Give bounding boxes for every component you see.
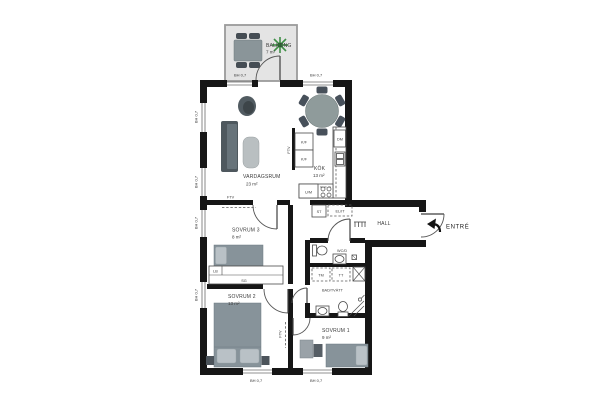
- bedroom3: SOVRUM 3 8 m² LB SG: [209, 228, 283, 285]
- window: [303, 370, 332, 373]
- room-area-sovrum3: 8 m²: [232, 235, 242, 240]
- bathroom: TM TT BAD/TVÄTT: [312, 267, 365, 317]
- window: [227, 82, 252, 85]
- room-area-sovrum2: 13 m²: [228, 301, 240, 306]
- window: [202, 168, 205, 196]
- window: [202, 103, 205, 132]
- bed-pillow: [356, 346, 367, 365]
- entrance-label: ENTRÉ: [446, 224, 469, 231]
- shower-icon: [349, 295, 365, 316]
- shaft: [353, 267, 365, 281]
- sink-icon: [333, 254, 346, 264]
- bedroom2-door: [264, 289, 288, 313]
- nightstand: [262, 356, 270, 365]
- armchair-seat: [243, 101, 254, 114]
- floor-plan: BALKONG 7 m² BH 0,7: [0, 0, 600, 400]
- room-label-wcd: WC/D: [337, 249, 347, 253]
- window: [303, 82, 333, 85]
- room-label-hall: HALL: [377, 221, 390, 227]
- toilet-icon: [338, 302, 348, 317]
- dresser: [314, 344, 323, 357]
- window: [202, 282, 205, 308]
- room-area-vardagsrum: 23 m²: [246, 182, 258, 187]
- floor-drain-icon: [352, 255, 357, 260]
- wc-door: [328, 219, 350, 241]
- bedroom2: SOVRUM 2 13 m² FTV: [206, 294, 286, 367]
- room-label-sovrum1: SOVRUM 1: [322, 328, 350, 334]
- nightstand: [206, 356, 214, 365]
- toilet-icon: [313, 245, 328, 256]
- vent-label: FTV: [287, 146, 291, 154]
- room-label-sovrum2: SOVRUM 2: [228, 294, 256, 300]
- wardrobe: [300, 340, 313, 358]
- vent-label: FTV: [279, 330, 283, 338]
- balcony-chair: [236, 33, 247, 39]
- balcony: BALKONG 7 m² BH 0,7: [225, 25, 297, 81]
- room-area-balkong: 7 m²: [266, 50, 276, 55]
- coffee-table: [243, 137, 259, 168]
- cleaning-cabinet-label: ST: [317, 210, 323, 214]
- bedroom1-door: [293, 318, 310, 335]
- bedroom3-door: [253, 205, 277, 229]
- wardrobe-strip: LB SG: [209, 266, 283, 284]
- bathroom-door: [292, 288, 307, 303]
- living-room: VARDAGSRUM 23 m² FTV: [221, 96, 280, 208]
- kitchen: K/F K/F FTV DM U/M KÖK 13 m²: [287, 87, 346, 199]
- room-label-kok: KÖK: [314, 165, 326, 172]
- window-height-label: BH 0,7: [194, 288, 199, 301]
- wc-room: WC/D: [313, 245, 357, 264]
- oven-micro-label: U/M: [305, 191, 312, 195]
- window-height-label: BH 0,7: [194, 110, 199, 123]
- window: [243, 370, 272, 373]
- balcony-chair: [249, 62, 260, 68]
- bed-pillow: [240, 349, 259, 363]
- window-height-label: BH 0,7: [194, 175, 199, 188]
- entrance: ENTRÉ: [427, 219, 469, 233]
- window-height-label: BH 0,7: [194, 216, 199, 229]
- window-height-label: BH 0,7: [250, 378, 263, 383]
- fridge-label: K/F: [301, 141, 308, 145]
- coat-hooks-icon: [354, 222, 366, 227]
- room-label-sovrum3: SOVRUM 3: [232, 228, 260, 234]
- electrical-cabinet-label: EL/IT: [335, 210, 345, 214]
- window-height-label: BH 0,7: [310, 378, 323, 383]
- fridge-label: K/F: [301, 158, 308, 162]
- balcony-chair: [249, 33, 260, 39]
- balcony-table: [234, 40, 262, 61]
- sink-icon: [316, 306, 329, 316]
- washer-label: TM: [318, 274, 323, 278]
- hall: ST EL/IT HALL: [312, 205, 391, 227]
- window-height-label: BH 0,7: [234, 73, 247, 78]
- bed-pillow: [216, 247, 227, 264]
- room-label-vardagsrum: VARDAGSRUM: [243, 174, 280, 180]
- sofa-cushions: [227, 124, 237, 169]
- floor-plan-canvas: BALKONG 7 m² BH 0,7: [0, 0, 600, 400]
- bedroom1: SOVRUM 1 9 m²: [300, 328, 368, 367]
- balcony-chair: [236, 62, 247, 68]
- room-label-bad: BAD/TVÄTT: [322, 289, 344, 293]
- room-area-sovrum1: 9 m²: [322, 335, 332, 340]
- dishwasher-label: DM: [337, 138, 343, 142]
- dining-table: [306, 95, 339, 128]
- room-area-kok: 13 m²: [313, 173, 325, 178]
- sliding-wardrobe-label: SG: [241, 279, 247, 283]
- linen-cabinet-label: LB: [213, 270, 218, 274]
- room-label-balkong: BALKONG: [266, 43, 292, 49]
- window-height-label: BH 0,7: [310, 73, 323, 78]
- window: [202, 210, 205, 237]
- bed-pillow: [217, 349, 236, 363]
- vent-label: FTV: [227, 196, 235, 200]
- kitchen-sink: [335, 152, 345, 166]
- dryer-label: TT: [339, 274, 344, 278]
